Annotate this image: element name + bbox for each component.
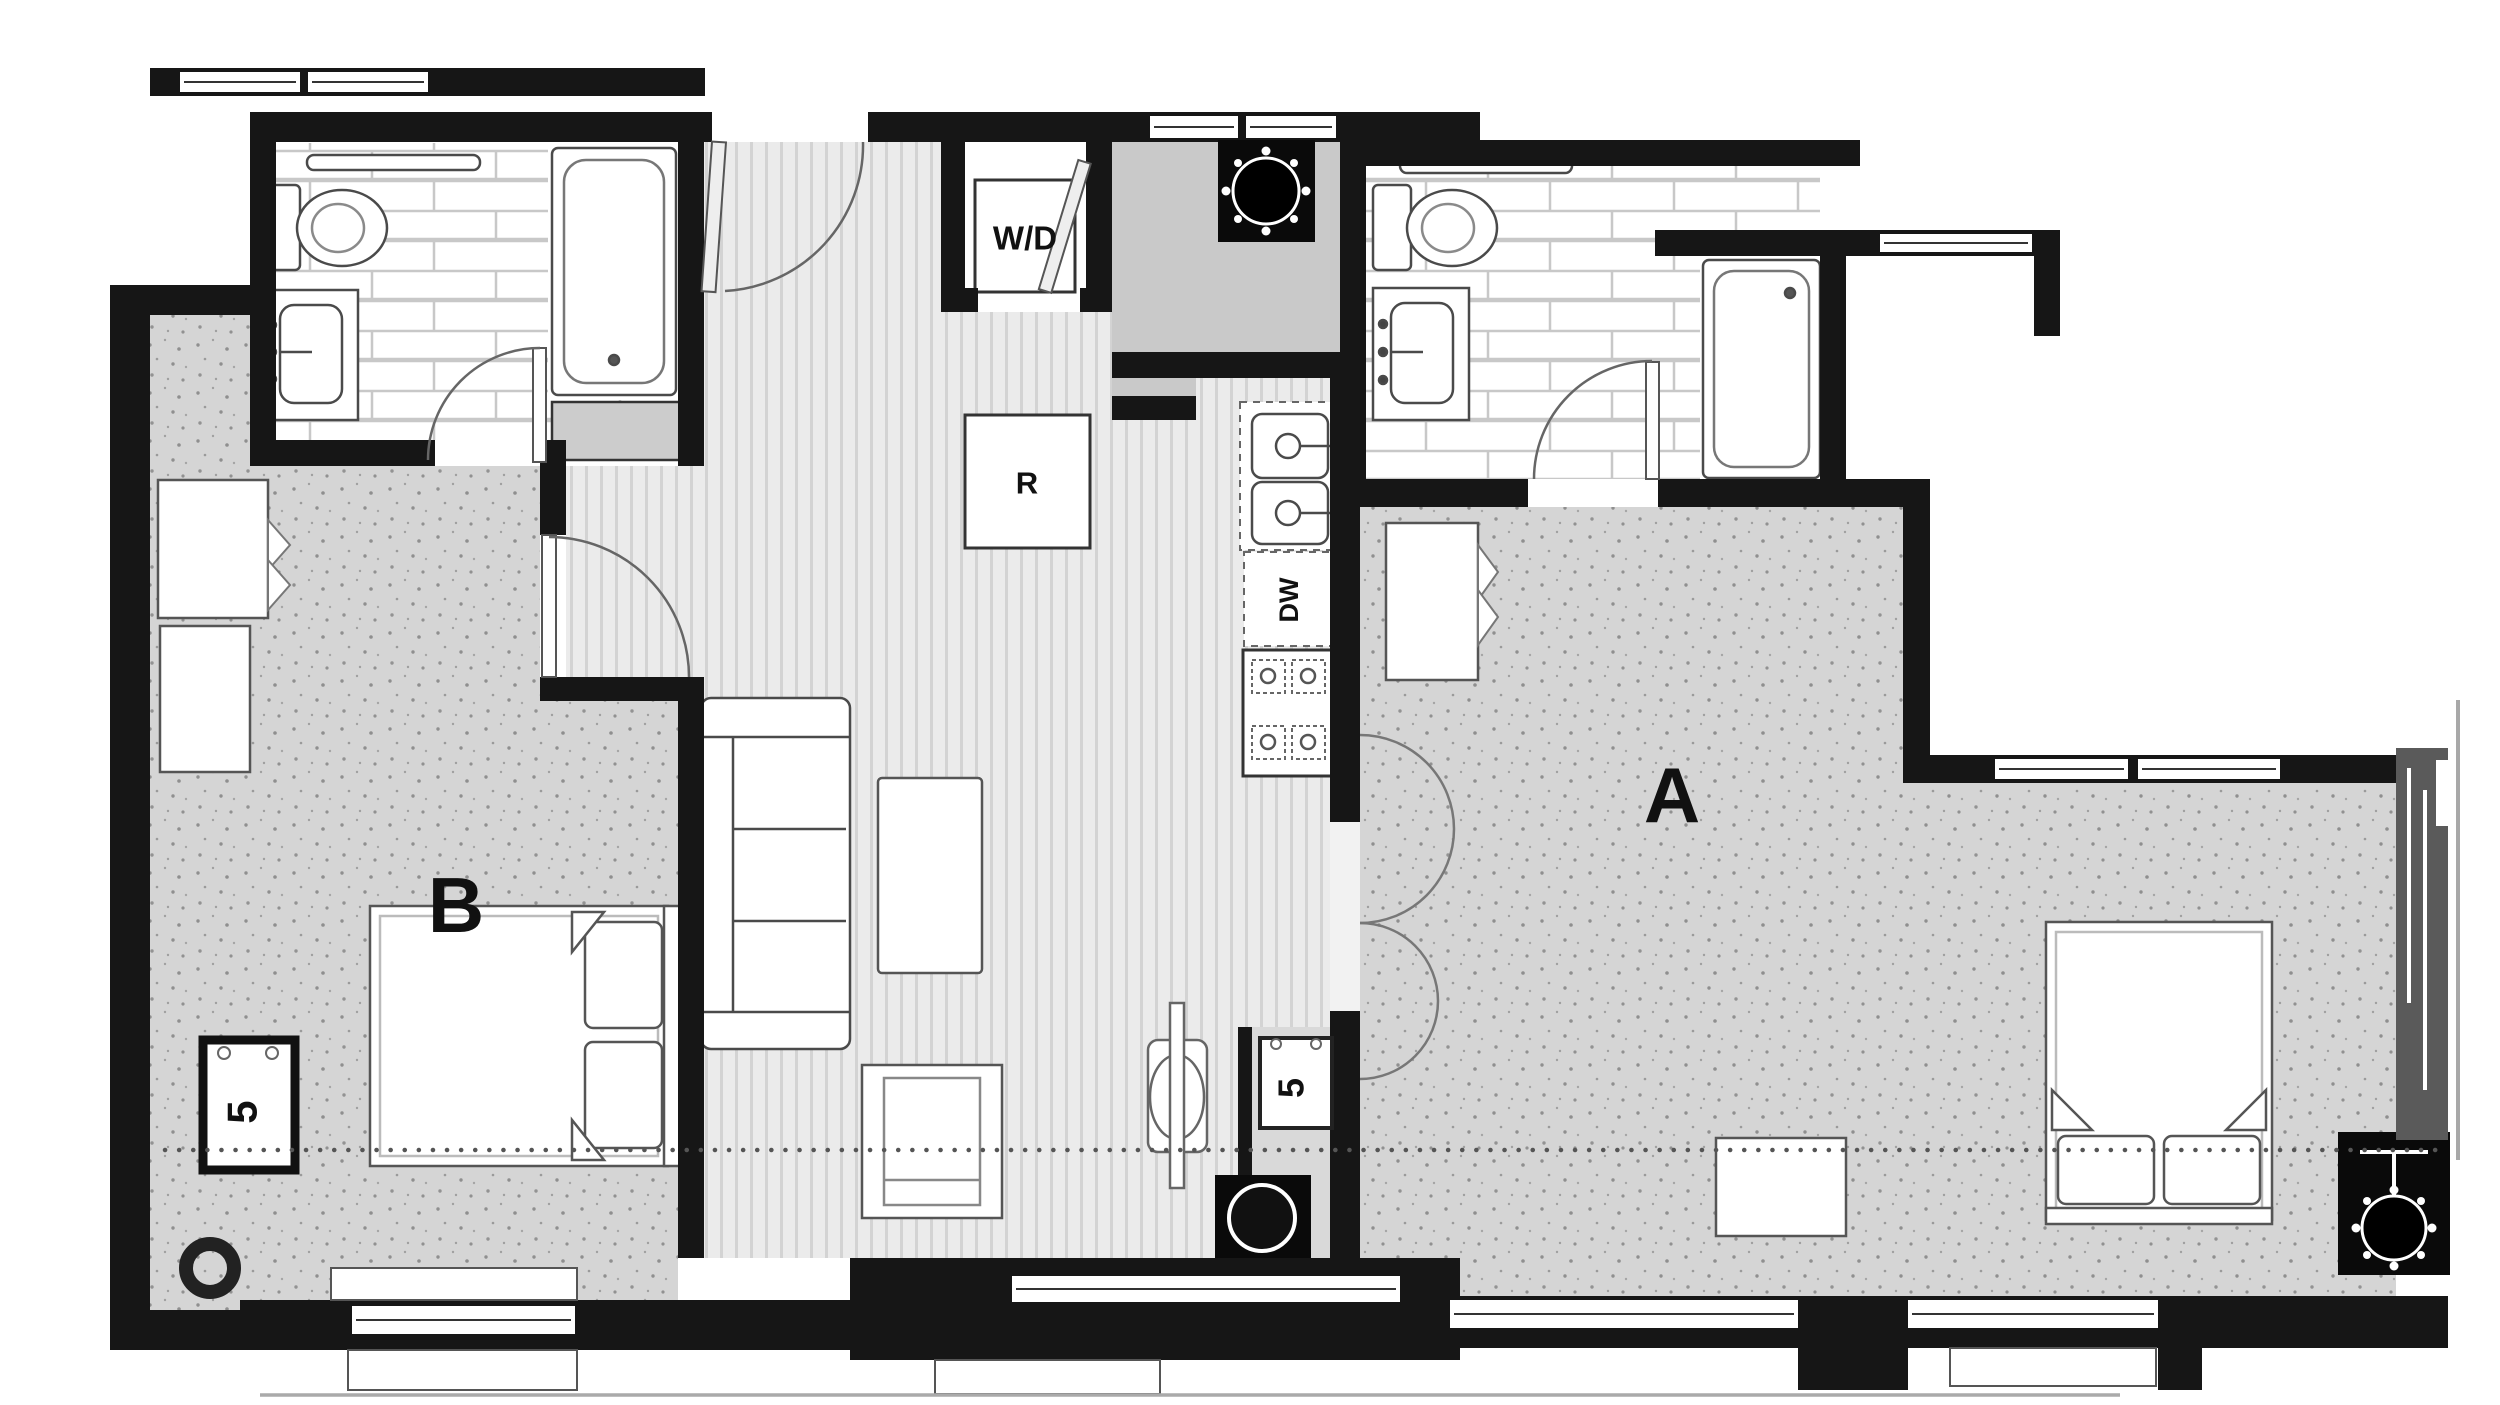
wall <box>1820 256 1846 480</box>
wall <box>250 440 435 466</box>
wall <box>850 1258 1460 1360</box>
wall <box>2158 1348 2202 1390</box>
vanity-sink-icon <box>1373 288 1469 420</box>
wall <box>1340 166 1366 507</box>
riser-column-bottom-right <box>2338 1132 2450 1275</box>
window-unit-b-bottom <box>331 1268 577 1390</box>
dresser-icon <box>1716 1138 1846 1236</box>
wall <box>1330 1011 1360 1258</box>
dishwasher-label: DW <box>1274 577 1304 622</box>
keynote-label: 5 <box>219 1100 266 1123</box>
wall <box>1112 396 1196 420</box>
refrigerator-label: R <box>1016 466 1038 501</box>
bed-icon <box>2046 922 2272 1224</box>
vanity-sink-icon <box>262 290 358 420</box>
tub-shelf <box>552 402 690 460</box>
washer-dryer-label: W/D <box>993 220 1057 257</box>
wall <box>2034 256 2060 336</box>
floor-plan-canvas: 5 5 A B W/D R DW <box>0 0 2500 1405</box>
wall <box>941 288 978 312</box>
wall <box>110 1310 240 1350</box>
keynote-label: 5 <box>1271 1078 1312 1098</box>
wall <box>941 142 965 312</box>
unit-b-label: B <box>428 861 484 949</box>
keynote-unit-a: 5 <box>1260 1038 1332 1128</box>
wall <box>540 677 704 701</box>
closet-box-icon <box>160 626 250 772</box>
wall <box>110 285 150 1315</box>
glazing-band <box>2396 700 2458 1160</box>
kitchen-sink-icon <box>1252 414 1330 544</box>
bathtub-icon <box>1703 260 1820 478</box>
toilet-icon <box>262 185 387 270</box>
round-column-center <box>1215 1175 1311 1258</box>
toilet-icon <box>1373 185 1497 270</box>
dining-table-icon <box>862 1065 1002 1218</box>
wall <box>1112 352 1345 378</box>
bathtub-icon <box>552 148 676 395</box>
riser-column-top <box>1218 140 1315 242</box>
sofa-icon <box>701 698 850 1049</box>
bed-icon <box>370 906 680 1166</box>
grab-bar-icon <box>307 155 480 170</box>
wall <box>1798 1348 1908 1390</box>
vestibule-floor <box>566 466 704 677</box>
range-icon <box>1243 650 1333 776</box>
wall <box>1340 140 1860 166</box>
wall <box>1238 1027 1252 1180</box>
wall <box>1080 288 1112 312</box>
window-tub-alcove <box>1880 234 2032 252</box>
wall <box>678 701 704 1258</box>
coffee-table-icon <box>878 778 982 973</box>
wall <box>1903 480 1930 782</box>
unit-a-label: A <box>1644 751 1700 839</box>
wall <box>250 112 712 142</box>
wall <box>678 142 704 466</box>
